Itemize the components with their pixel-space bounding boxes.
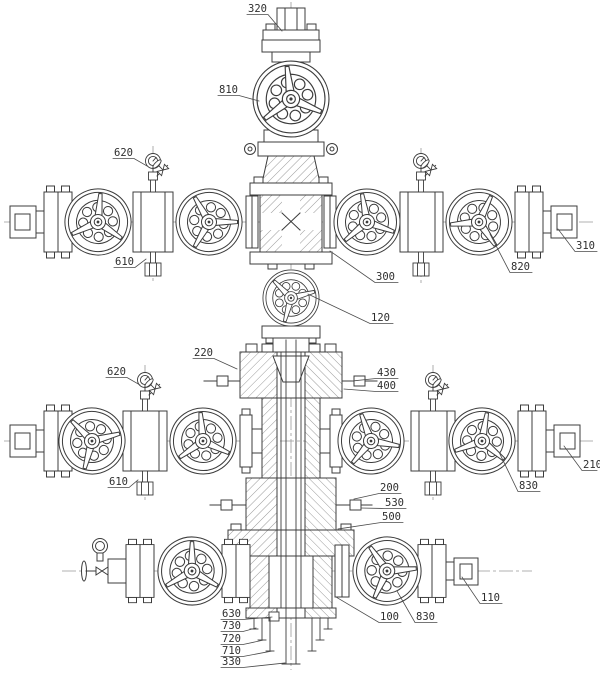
pressure-gauge <box>414 154 438 193</box>
drain-fitting <box>137 471 153 495</box>
part-label-500: 500 <box>382 511 401 523</box>
part-label-620: 620 <box>107 366 126 378</box>
part-label-530: 530 <box>385 497 404 509</box>
part-label-730: 730 <box>222 620 241 632</box>
leader-line-620 <box>113 159 147 167</box>
part-label-330: 330 <box>222 656 241 668</box>
leader-line-620 <box>106 378 140 386</box>
part-label-100: 100 <box>380 611 399 623</box>
part-label-210: 210 <box>583 459 600 471</box>
part-label-200: 200 <box>380 482 399 494</box>
top-cap <box>262 8 320 62</box>
part-label-830: 830 <box>416 611 435 623</box>
pressure-gauge <box>146 154 170 193</box>
part-label-810: 810 <box>219 84 238 96</box>
leader-line-220 <box>193 359 237 370</box>
part-label-720: 720 <box>222 633 241 645</box>
part-label-110: 110 <box>481 592 500 604</box>
part-label-120: 120 <box>371 312 390 324</box>
cross-block <box>246 177 336 269</box>
swab-valve-wheel <box>263 270 319 326</box>
drain-fitting <box>413 252 429 276</box>
part-label-430: 430 <box>377 367 396 379</box>
drain-fitting <box>145 252 161 276</box>
part-label-630: 630 <box>222 608 241 620</box>
pressure-gauge <box>138 373 162 412</box>
part-label-320: 320 <box>248 3 267 15</box>
drawing-canvas: 3208106206103001203108202204304006206102… <box>0 0 600 674</box>
part-label-300: 300 <box>376 271 395 283</box>
top-master-valve-wheel <box>248 56 334 142</box>
part-label-610: 610 <box>109 476 128 488</box>
part-label-830: 830 <box>519 480 538 492</box>
part-label-220: 220 <box>194 347 213 359</box>
part-label-620: 620 <box>114 147 133 159</box>
part-label-400: 400 <box>377 380 396 392</box>
wellhead-assembly-drawing: 3208106206103001203108202204304006206102… <box>0 0 600 674</box>
part-label-820: 820 <box>511 261 530 273</box>
part-label-610: 610 <box>115 256 134 268</box>
pressure-gauge <box>426 373 450 412</box>
adapter-flange <box>245 130 338 183</box>
drain-fitting <box>425 471 441 495</box>
part-label-310: 310 <box>576 240 595 252</box>
